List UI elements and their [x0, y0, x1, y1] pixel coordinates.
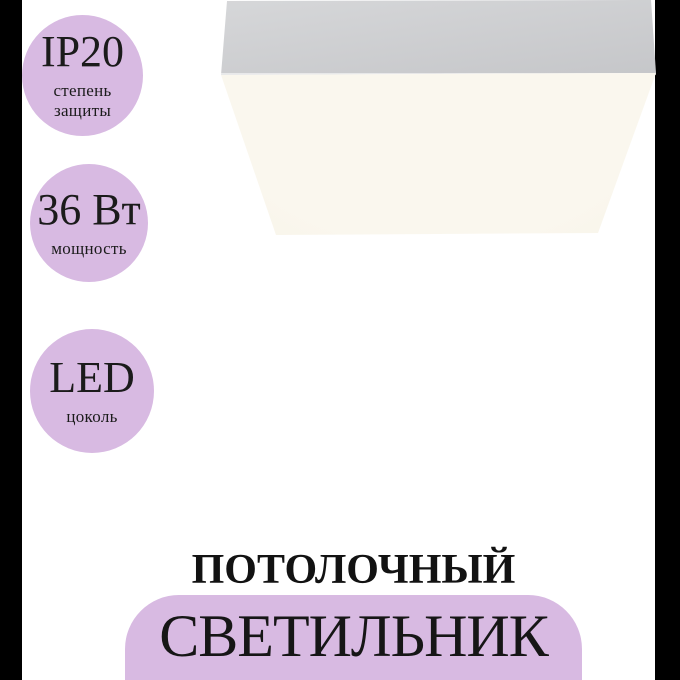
badge-label-socket: цоколь [66, 407, 117, 427]
badge-label-ip: степень защиты [36, 81, 130, 120]
badge-value-ip: IP20 [41, 30, 124, 74]
spec-badge-socket: LED цоколь [30, 329, 154, 453]
left-edge-bar [0, 0, 22, 680]
product-name-label: СВЕТИЛЬНИК [125, 595, 582, 666]
product-image-ceiling-lamp [215, 0, 657, 240]
spec-badge-power: 36 Вт мощность [30, 164, 148, 282]
spec-badge-protection: IP20 степень защиты [22, 15, 143, 136]
badge-value-socket: LED [49, 356, 135, 400]
product-title-block: ПОТОЛОЧНЫЙ СВЕТИЛЬНИК [125, 549, 582, 680]
right-edge-bar [655, 0, 680, 680]
product-card: IP20 степень защиты 36 Вт мощность LED ц… [0, 0, 680, 680]
badge-label-power: мощность [51, 239, 127, 259]
product-type-label: ПОТОЛОЧНЫЙ [125, 549, 582, 591]
product-name-plate: СВЕТИЛЬНИК [125, 595, 582, 680]
badge-value-power: 36 Вт [37, 188, 141, 232]
